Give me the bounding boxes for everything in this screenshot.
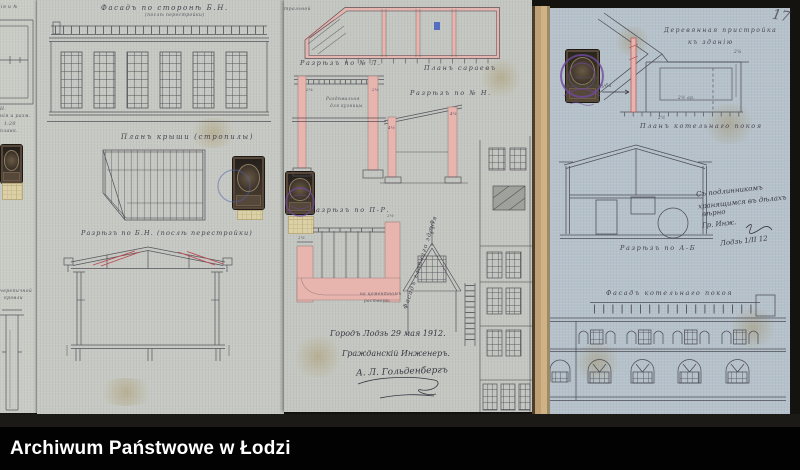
stamp-remnant — [2, 183, 23, 200]
shed-plan-drawing — [305, 8, 500, 62]
fragment-plan-drawing — [0, 0, 37, 413]
section-l-label: Разрѣзъ по № Л. — [300, 60, 382, 67]
red-truss-struts — [93, 251, 223, 266]
signature-flourish — [358, 377, 438, 398]
archive-name: Archiwum Państwowe w Łodzi — [10, 438, 291, 460]
boiler-facade-label: Фасадъ котельнаго покоя — [606, 290, 733, 297]
shed-plan-label: Планъ сараевъ — [424, 65, 497, 72]
certify-signature-flourish — [746, 224, 772, 233]
section-bn-drawing — [64, 247, 232, 361]
revenue-stamp — [1, 145, 22, 183]
sheet-main-left: Фасадъ по сторонѣ Б.Н. (послѣ перестройк… — [37, 0, 284, 414]
stamp-emblem — [4, 150, 20, 171]
annex-title: Деревянная пристройка — [664, 28, 777, 34]
fragment-text: кровли — [4, 297, 23, 302]
dimension-label: 4½ — [450, 112, 457, 116]
section-ab-label: Разрѣзъ по А-Б — [620, 245, 696, 252]
dimension-label: 2½ ар. — [678, 96, 695, 100]
fragment-text: планк. — [0, 130, 18, 135]
dimension-label: 2¼ — [372, 88, 379, 92]
archive-photo: ія и № Н. нія и разм. 1:20 планк. черепи… — [0, 0, 800, 470]
facade-elevation-drawing — [47, 22, 271, 122]
signature-city-date: Городъ Лодзь 29 мая 1912. — [330, 330, 446, 338]
section-pr-label: Разрѣзъ по П-Р. — [310, 207, 390, 214]
boiler-plan-label: Планъ котельнаго покоя — [640, 123, 763, 130]
chimney-note: Сквозная — [571, 76, 599, 81]
sheet-main-right: тральной Разрѣзъ по № Л. Планъ сараевъ Р… — [284, 0, 532, 412]
roof-plan-drawing — [103, 150, 205, 220]
fragment-text: нія и разм. — [0, 115, 31, 120]
annex-title: къ зданію — [688, 40, 734, 46]
dimension-label: 2½ — [658, 116, 666, 120]
mortar-note: на цементномъ — [360, 292, 401, 296]
room-note: Раздѣвальня — [326, 97, 360, 101]
section-pr-drawing — [297, 222, 400, 302]
cancel-mark — [218, 170, 250, 202]
dimension-label: 4½ — [388, 126, 395, 130]
dimension-label: 2¼ — [734, 50, 742, 54]
sheet-blue: 17 Деревянная пристройка къ зданію Сквоз… — [550, 8, 790, 424]
facade-title: Фасадъ по сторонѣ Б.Н. — [101, 5, 229, 12]
page-number: 17 — [771, 7, 791, 26]
mortar-note: растворѣ — [364, 299, 390, 303]
side-building-drawing — [465, 136, 532, 412]
dimension-label: 2¼ — [306, 88, 313, 92]
fragment-text: Н. — [0, 108, 6, 113]
fragment-text: тральной — [284, 8, 311, 13]
chimney-note: кирпичн. труба — [564, 84, 612, 89]
sheet-blue-drawings — [550, 8, 790, 424]
section-n-drawing — [380, 105, 468, 183]
stamp-value-band — [3, 172, 20, 180]
dimension-label: 2½ — [298, 236, 305, 240]
fragment-text: черепичной — [0, 290, 32, 295]
roof-plan-title: Планъ крыши (стропилы) — [121, 134, 254, 141]
sheet-main-left-drawings — [37, 0, 284, 414]
facade-subtitle: (послѣ перестройки) — [145, 14, 204, 19]
fragment-text: 1:20 — [4, 123, 16, 128]
section-bn-title: Разрѣзъ по Б.Н. (послѣ перестройки) — [81, 230, 253, 237]
fragment-text: ія и № — [1, 6, 18, 11]
dimension-label: 2½ — [387, 214, 394, 218]
room-note: для кузницы — [330, 104, 363, 108]
blue-pencil-mark — [434, 22, 440, 30]
sheet-blue-edge — [532, 6, 550, 424]
section-n-label: Разрѣзъ по № Н. — [410, 90, 492, 97]
boiler-facade-drawing — [550, 295, 786, 401]
sheet-left-fragment: ія и № Н. нія и разм. 1:20 планк. черепи… — [0, 0, 37, 413]
archive-footer-bar: Archiwum Państwowe w Łodzi — [0, 414, 800, 470]
signature-profession: Гражданскій Инженеръ. — [342, 350, 450, 358]
section-ab-drawing — [559, 145, 713, 239]
